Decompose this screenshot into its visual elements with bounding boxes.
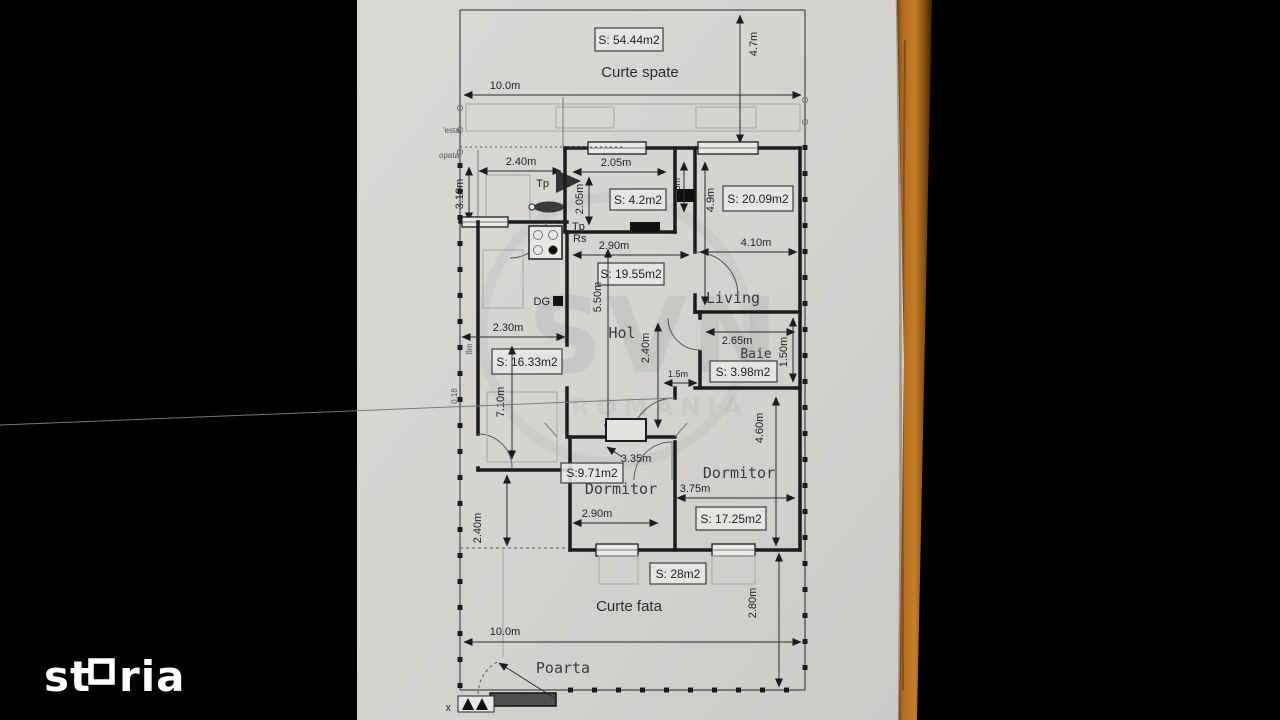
living-area-badge: S: 20.09m2	[727, 192, 789, 206]
bedroom-right-label: Dormitor	[703, 464, 775, 482]
back-yard-width-dim: 10.0m	[490, 80, 521, 92]
living-depth-dim: 4.9m	[705, 188, 717, 212]
margin-note-1: 'esta,	[443, 126, 462, 135]
screenshot-photo: SVN ROMANIA S: 54.44m2	[0, 0, 1280, 720]
window	[596, 544, 638, 556]
kitchen-width-dim: 2.30m	[493, 322, 524, 334]
bathroom-area-badge: S: 3.98m2	[716, 365, 771, 379]
rs-label: Rs	[573, 233, 587, 245]
bathroom-width-dim: 2.65m	[722, 335, 753, 347]
back-yard-area-badge: S: 54.44m2	[598, 33, 660, 47]
front-yard-label: Curte fata	[596, 598, 663, 615]
kitchen-wall-dim: 0.18	[450, 388, 459, 404]
pantry-area-badge: S: 4.2m2	[614, 193, 662, 207]
dg-marker	[553, 296, 563, 306]
bedroom-right-width-dim: 3.75m	[680, 483, 711, 495]
bathroom-depth-dim: 1.50m	[778, 337, 790, 368]
back-yard-label: Curte spate	[601, 64, 679, 81]
logo-text-suffix: ria	[119, 652, 185, 701]
window	[462, 217, 508, 227]
niche-dim: 2.5m	[672, 178, 682, 198]
living-width-dim: 4.10m	[741, 237, 772, 249]
front-yard-width-dim: 10.0m	[490, 626, 521, 638]
living-label: Living	[706, 289, 760, 307]
boiler-tank-symbol	[534, 202, 564, 213]
hall-width-mid-dim: 2.40m	[640, 333, 652, 364]
pantry-depth-dim: 2.05m	[574, 184, 586, 215]
gate-label: Poarta	[536, 659, 590, 677]
bedroom-right-area-badge: S: 17.25m2	[700, 512, 762, 526]
back-yard-depth-dim: 4.7m	[748, 32, 760, 56]
logo-text-prefix: st	[44, 652, 91, 701]
front-porch-dim: 2.40m	[472, 513, 484, 544]
stove-symbol	[529, 226, 562, 259]
pantry-width-dim: 2.05m	[601, 157, 632, 169]
gate-corner-mark: x	[446, 702, 452, 714]
hall-pass-dim: 1.5m	[668, 369, 688, 379]
kitchen-depth-dim: 7.10m	[495, 387, 507, 418]
bedroom-left-width-dim: 2.90m	[582, 508, 613, 520]
pantry-radiator	[630, 222, 660, 232]
kitchen-area-badge: S: 16.33m2	[496, 355, 558, 369]
wardrobe	[606, 419, 646, 441]
tp-upper-label: Tp	[536, 178, 549, 190]
porch-width-dim: 2.40m	[506, 156, 537, 168]
kitchen-side-dim: 8m	[465, 343, 474, 354]
bedroom-left-label: Dormitor	[585, 480, 657, 498]
gate-leaf	[490, 693, 556, 706]
front-yard-area-badge: S: 28m2	[656, 567, 701, 581]
hall-area-badge: S: 19.55m2	[600, 267, 662, 281]
window	[712, 544, 755, 556]
watermark-subtext: ROMANIA	[571, 393, 749, 421]
hall-length-dim: 5.50m	[592, 282, 604, 313]
bedroom-right-depth-dim: 4.60m	[754, 413, 766, 444]
bedroom-left-diag-dim: 3.35m	[621, 453, 652, 465]
bedroom-left-area-badge: S:9.71m2	[566, 466, 618, 480]
boiler-cap	[529, 204, 535, 210]
hall-width-top-dim: 2.90m	[599, 240, 630, 252]
hall-label: Hol	[608, 324, 635, 342]
photo-canvas: SVN ROMANIA S: 54.44m2	[0, 0, 1280, 720]
margin-note-2: opata,	[439, 151, 461, 160]
bathroom-label: Baie	[740, 347, 771, 362]
porch-depth-dim: 3.10m	[454, 179, 466, 210]
front-yard-depth-dim: 2.80m	[747, 588, 759, 619]
window	[698, 142, 758, 154]
dg-label: DG	[534, 296, 551, 308]
window	[588, 142, 646, 154]
